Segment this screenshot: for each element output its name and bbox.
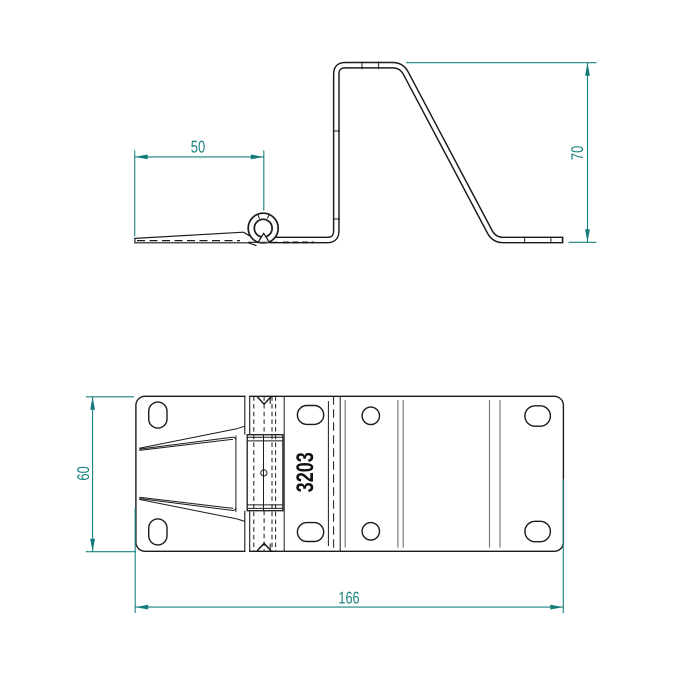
svg-text:3203: 3203 <box>292 452 319 492</box>
svg-text:166: 166 <box>338 588 359 607</box>
svg-text:60: 60 <box>74 466 93 480</box>
svg-text:70: 70 <box>568 146 587 160</box>
svg-text:50: 50 <box>191 137 205 156</box>
